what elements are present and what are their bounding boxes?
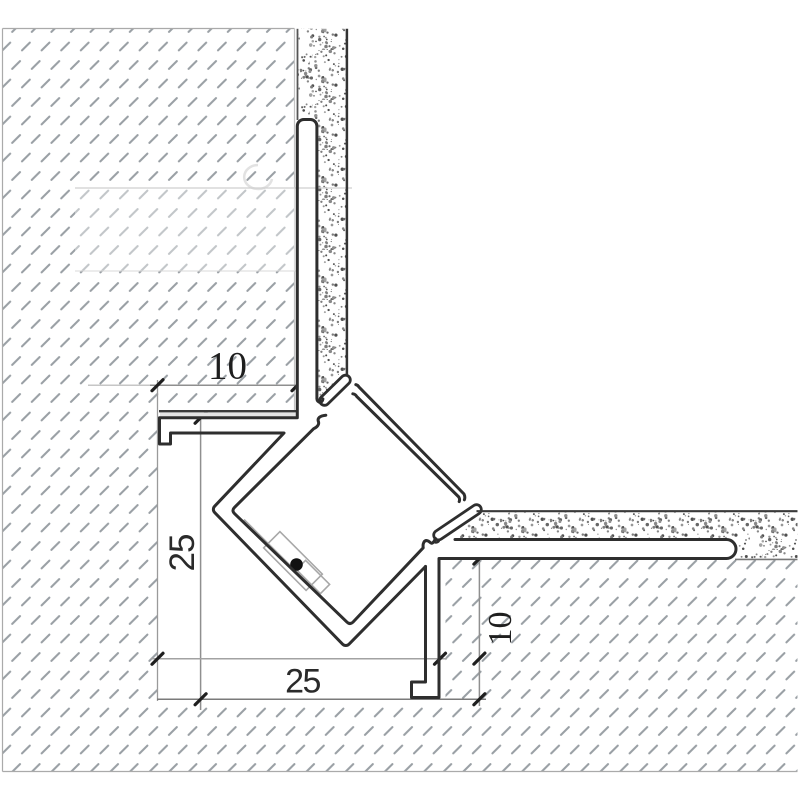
svg-text:25: 25 — [163, 535, 202, 572]
svg-text:25: 25 — [285, 663, 320, 701]
svg-text:10: 10 — [208, 345, 247, 388]
svg-text:10: 10 — [482, 612, 519, 646]
